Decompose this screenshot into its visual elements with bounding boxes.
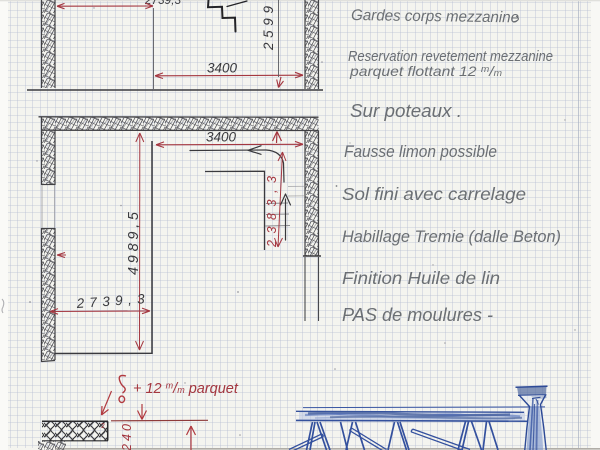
svg-text:PAS de moulures -: PAS de moulures -: [342, 304, 493, 325]
svg-text:Gardes corps mezzanine: Gardes corps mezzanine: [351, 7, 520, 26]
svg-text:Sol fini avec carrelage: Sol fini avec carrelage: [342, 184, 526, 204]
svg-text:2: 2: [101, 423, 105, 430]
svg-text:parquet flottant 12 m/m: parquet flottant 12 m/m: [349, 63, 503, 79]
svg-text:3400: 3400: [207, 61, 238, 76]
svg-text:Finition Huile de lin: Finition Huile de lin: [342, 268, 500, 288]
svg-text:Habillage Tremie (dalle Beton): Habillage Tremie (dalle Beton): [342, 228, 561, 246]
svg-text:3400: 3400: [206, 130, 237, 145]
svg-text:+ 12 m/m parquet: + 12 m/m parquet: [133, 381, 239, 398]
svg-text:240: 240: [120, 424, 134, 450]
svg-text:Fausse limon possible: Fausse limon possible: [344, 143, 497, 161]
svg-text:Sur poteaux .: Sur poteaux .: [350, 101, 462, 121]
